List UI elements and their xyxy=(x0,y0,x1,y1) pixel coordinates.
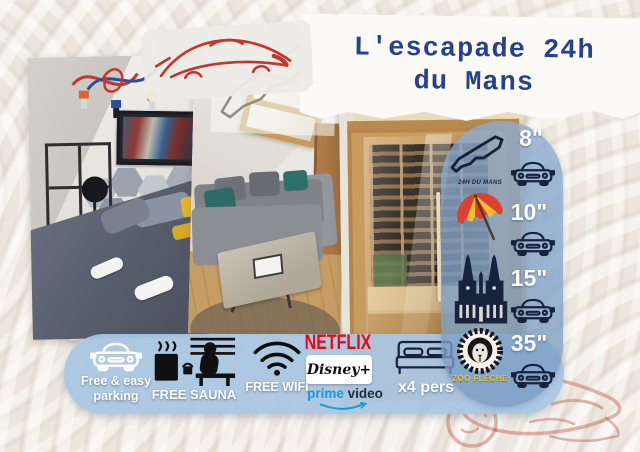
rolled-towel xyxy=(133,274,176,302)
distance-time: 35" xyxy=(501,332,557,355)
tape-with-car-sketch xyxy=(140,17,316,106)
circuit-caption: 24H DU MANS xyxy=(441,180,519,186)
prime-smile-icon xyxy=(316,402,372,412)
disney-label: Disney+ xyxy=(307,362,371,378)
rolled-towel xyxy=(89,255,125,280)
title-paper: L'escapade 24h du Mans xyxy=(299,14,640,125)
picture-art xyxy=(122,117,193,160)
disney-plus-logo: Disney+ xyxy=(306,355,372,384)
distance-panel: 24H DU MANS 8" 10" xyxy=(441,121,563,407)
tablet-on-table xyxy=(253,253,284,279)
distance-time: 10" xyxy=(501,201,557,224)
gray-cushion xyxy=(249,171,280,196)
page-title-line1: L'escapade 24h xyxy=(300,32,640,70)
car-front-icon xyxy=(511,361,555,389)
prime-word: prime xyxy=(307,386,344,401)
netflix-logo: NETFLIX xyxy=(302,335,374,353)
zoo-caption: ZOO FLÈCHE xyxy=(441,374,519,383)
page-title-line2: du Mans xyxy=(300,65,640,103)
distance-time: 15" xyxy=(501,267,557,290)
car-front-icon xyxy=(511,296,555,324)
distance-time: 8" xyxy=(503,127,559,150)
sauna-label: FREE SAUNA xyxy=(146,387,242,402)
prime-video-logo: prime video xyxy=(302,386,388,401)
red-race-car-sketch xyxy=(143,19,312,101)
car-front-icon xyxy=(90,338,142,374)
video-word: video xyxy=(344,386,383,401)
car-front-icon xyxy=(511,229,555,257)
teal-cushion xyxy=(283,170,309,192)
lemans-circuit-icon xyxy=(447,133,511,179)
sauna-icon xyxy=(150,336,238,386)
wifi-icon xyxy=(252,338,302,378)
zoo-lion-icon xyxy=(456,327,504,375)
car-front-icon xyxy=(511,159,555,187)
promo-collage: L'escapade 24h du Mans xyxy=(0,0,640,452)
netflix-label: NETFLIX xyxy=(305,332,372,355)
